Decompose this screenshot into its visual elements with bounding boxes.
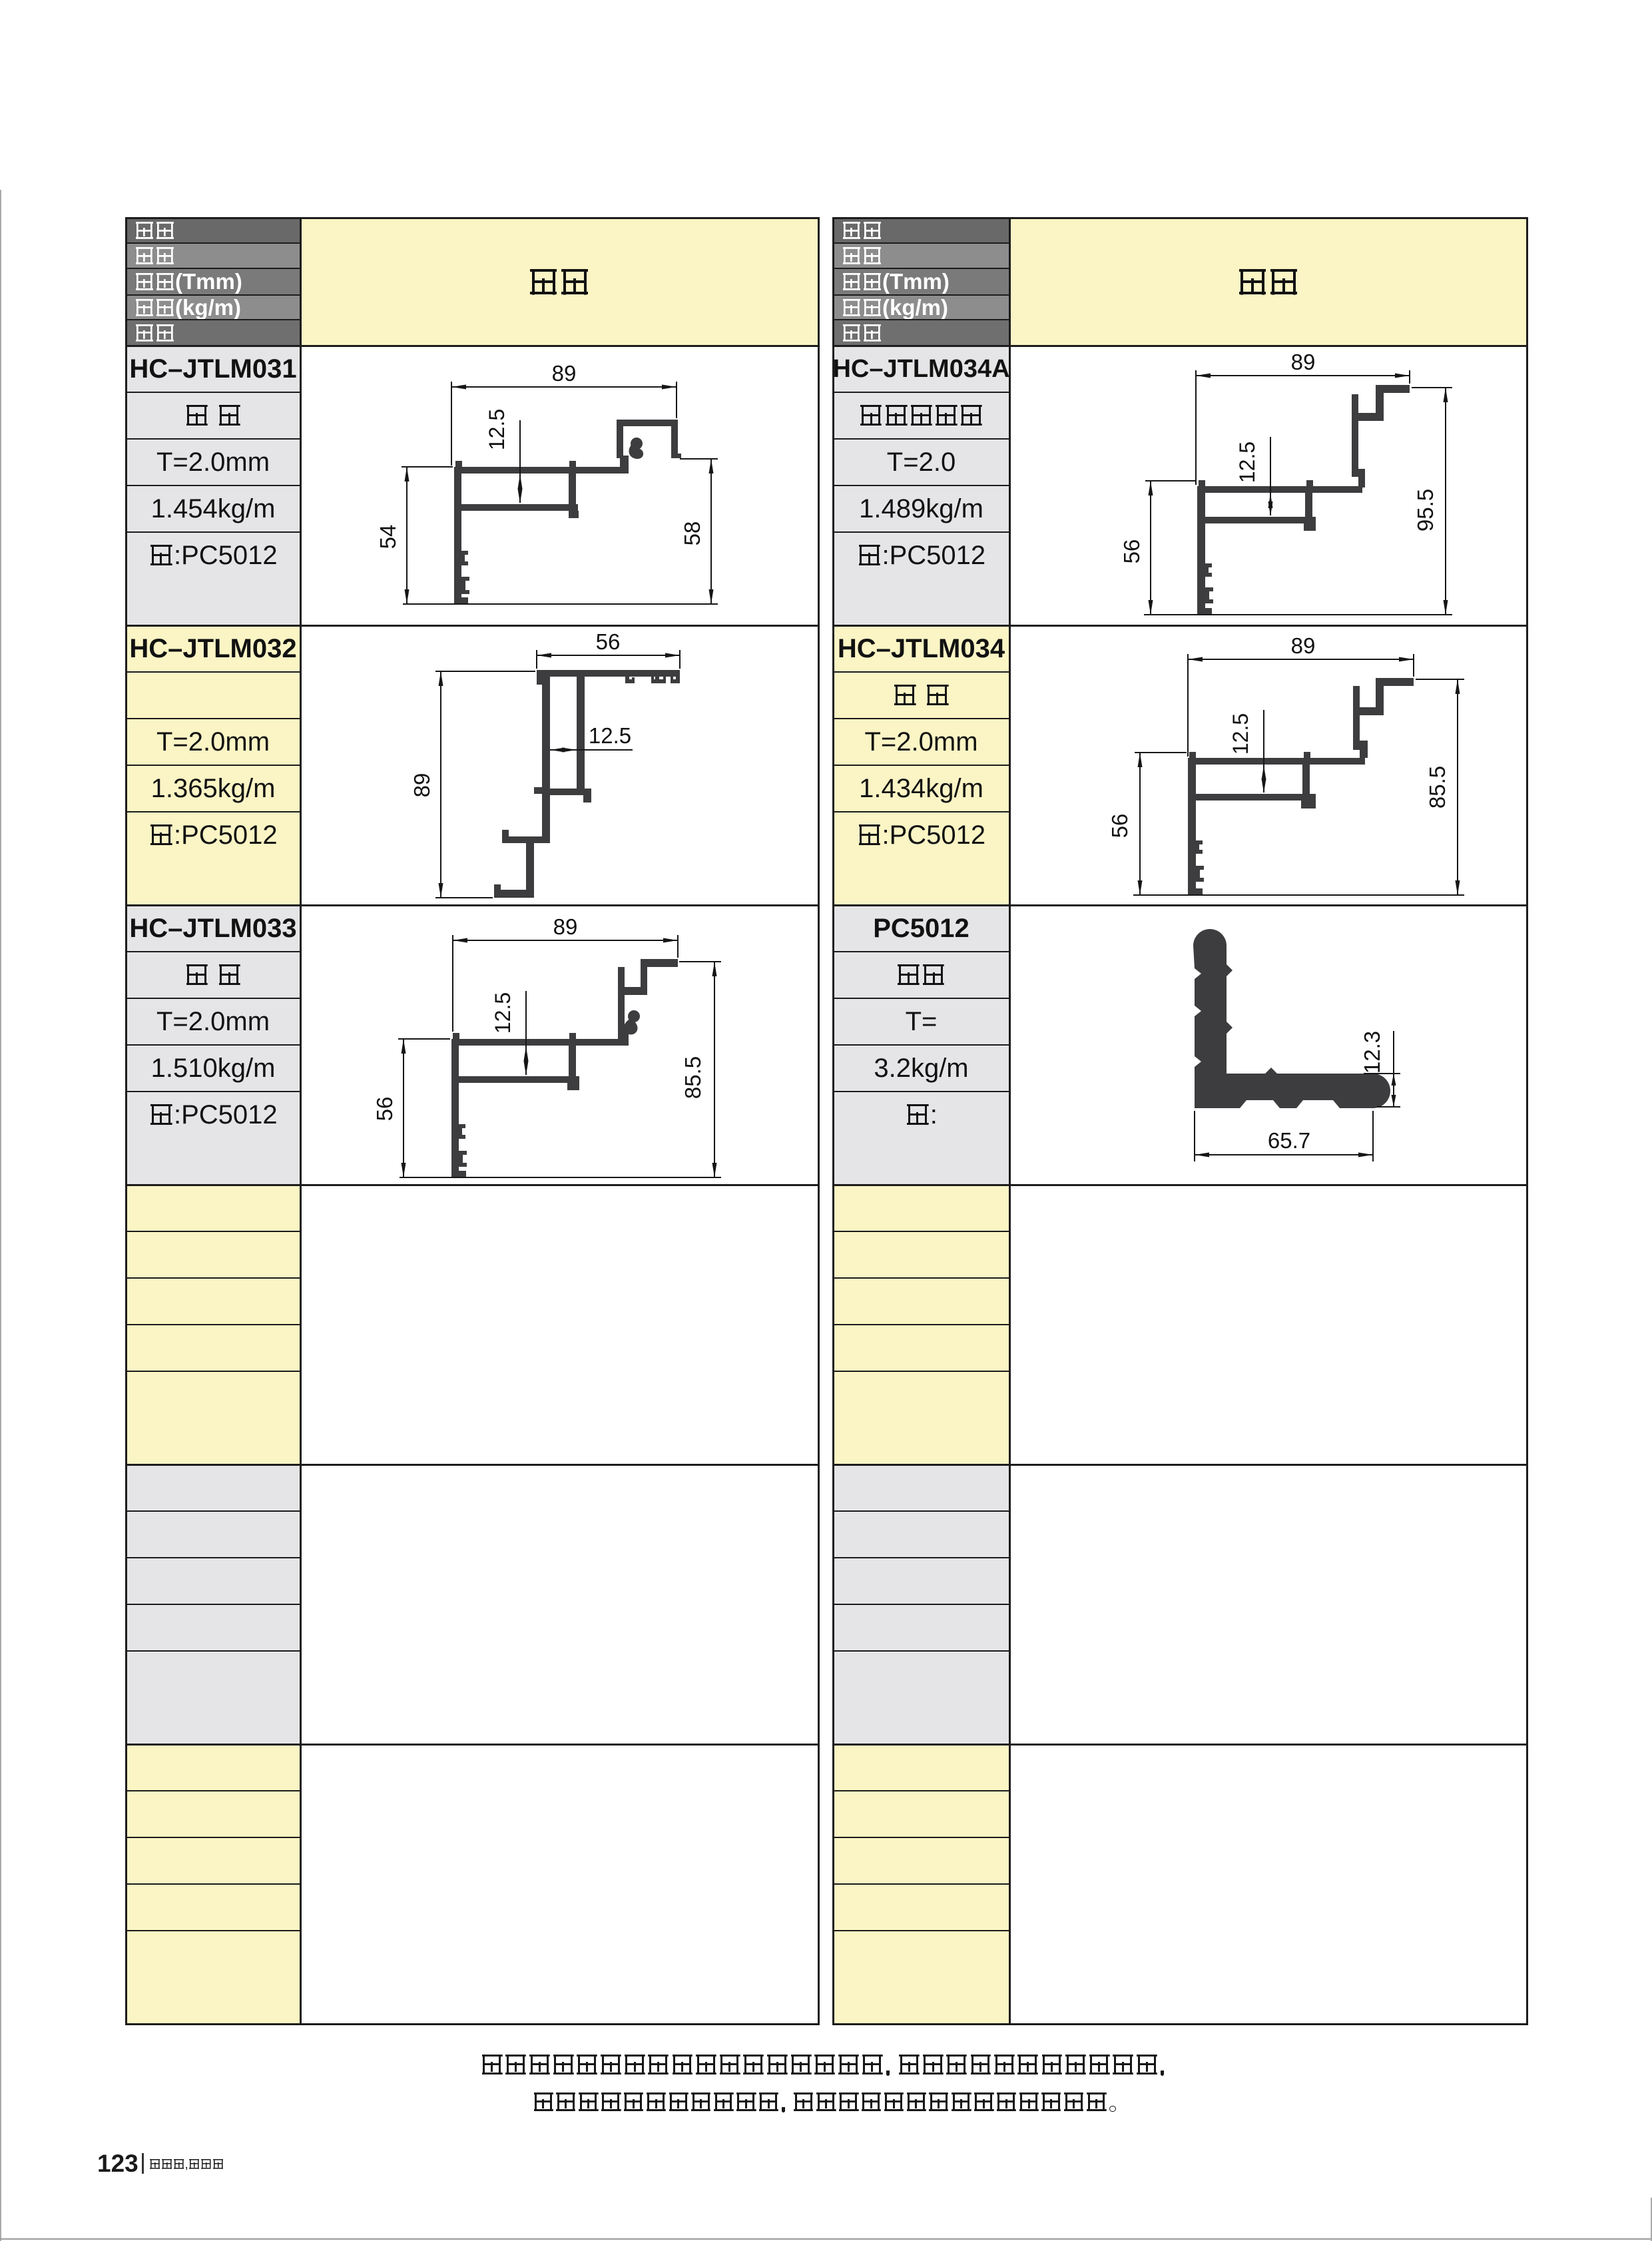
svg-text:89: 89 [552,361,577,386]
svg-text:56: 56 [596,629,621,654]
svg-text:95.5: 95.5 [1413,489,1438,531]
svg-text:12.5: 12.5 [491,992,515,1034]
svg-text:12.5: 12.5 [1235,442,1259,483]
svg-text:12.5: 12.5 [1229,713,1252,755]
svg-text:12.5: 12.5 [485,409,509,450]
svg-text:89: 89 [553,914,578,939]
svg-text:12.5: 12.5 [589,723,631,748]
svg-text:89: 89 [410,773,434,798]
svg-text:58: 58 [680,521,704,546]
svg-text:89: 89 [1291,633,1316,658]
svg-text:56: 56 [1119,539,1144,564]
svg-text:89: 89 [1291,350,1316,374]
svg-text:56: 56 [1107,814,1132,838]
svg-text:85.5: 85.5 [1425,766,1450,808]
svg-text:56: 56 [372,1097,397,1121]
svg-text:54: 54 [376,525,400,549]
svg-text:65.7: 65.7 [1268,1128,1310,1153]
svg-text:85.5: 85.5 [681,1056,705,1099]
svg-text:12.3: 12.3 [1360,1031,1384,1074]
